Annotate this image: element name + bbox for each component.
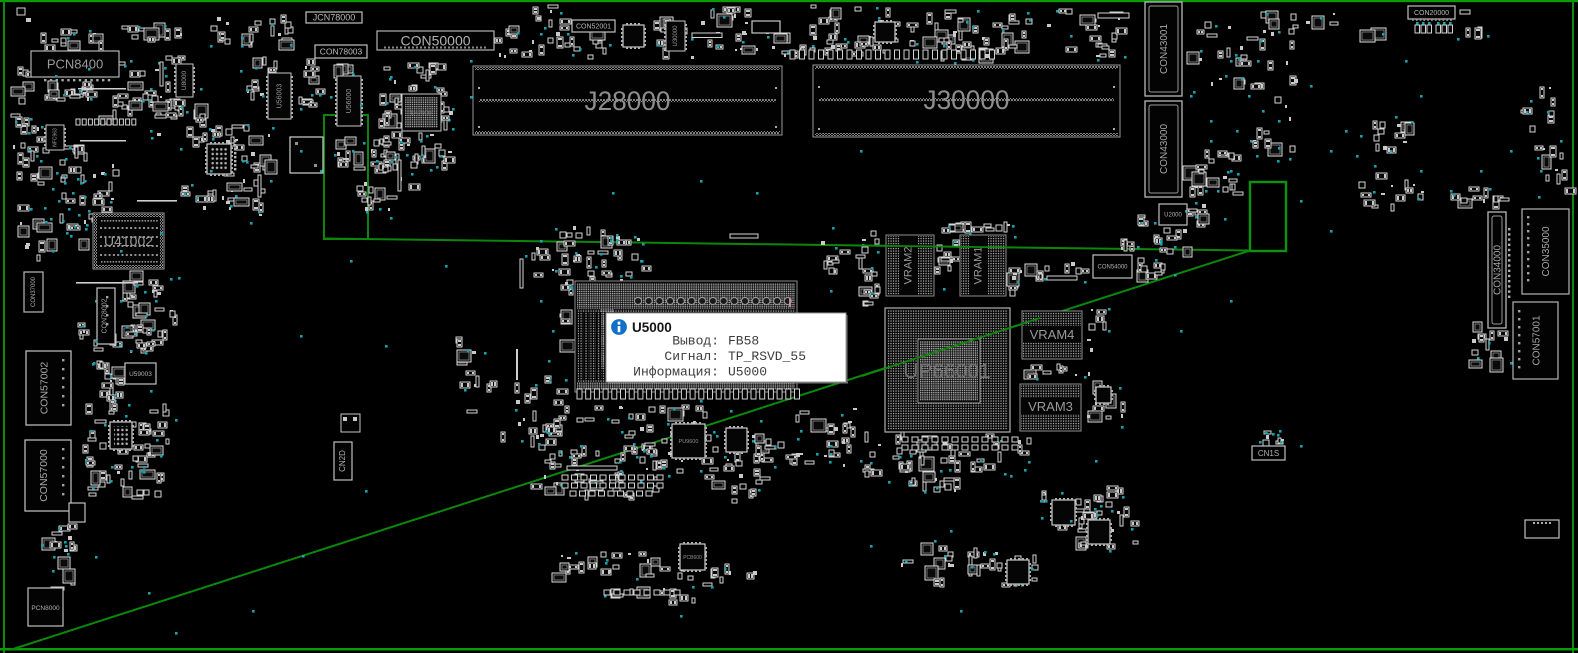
svg-text:TP_RSVD_55: TP_RSVD_55 <box>728 349 806 364</box>
svg-text:CON54000: CON54000 <box>1097 265 1128 271</box>
svg-text:PCN8000: PCN8000 <box>31 605 60 612</box>
svg-text:U8000: U8000 <box>181 71 188 91</box>
svg-text:U5000: U5000 <box>632 320 672 335</box>
svg-text:PU9600: PU9600 <box>679 439 699 445</box>
svg-text:Сигнал:: Сигнал: <box>664 349 719 364</box>
svg-text:CN2D: CN2D <box>338 450 347 472</box>
svg-text:J28000: J28000 <box>585 86 671 116</box>
svg-text:CON37000: CON37000 <box>31 276 37 307</box>
svg-text:CON35000: CON35000 <box>1541 226 1552 276</box>
svg-text:U5000: U5000 <box>728 365 767 380</box>
svg-text:CON78003: CON78003 <box>320 47 363 57</box>
svg-text:CON43001: CON43001 <box>1159 24 1170 74</box>
svg-text:CON20000: CON20000 <box>1414 10 1449 17</box>
svg-text:U30000: U30000 <box>673 25 679 47</box>
svg-text:VRAM2: VRAM2 <box>902 247 914 285</box>
svg-text:FB58: FB58 <box>728 334 759 349</box>
svg-text:PCB600: PCB600 <box>683 555 702 561</box>
svg-text:CON52001: CON52001 <box>576 24 611 31</box>
svg-text:U41002: U41002 <box>104 233 153 249</box>
svg-text:VRAM1: VRAM1 <box>972 247 984 285</box>
svg-text:U2000: U2000 <box>1164 213 1182 219</box>
svg-text:CN1S: CN1S <box>1258 449 1279 458</box>
svg-text:U59003: U59003 <box>129 371 152 378</box>
svg-text:CON57002: CON57002 <box>39 362 51 415</box>
svg-text:CON57000: CON57000 <box>38 449 50 502</box>
svg-text:CON43000: CON43000 <box>1159 124 1170 174</box>
svg-text:Вывод:: Вывод: <box>672 334 719 349</box>
svg-text:J30000: J30000 <box>924 85 1010 115</box>
svg-text:CON50000: CON50000 <box>400 33 470 49</box>
svg-text:U56003: U56003 <box>276 84 283 109</box>
svg-text:UP66001: UP66001 <box>903 360 991 383</box>
svg-text:PCN8400: PCN8400 <box>47 57 103 72</box>
svg-text:VRAM4: VRAM4 <box>1030 327 1075 342</box>
svg-text:VRAM3: VRAM3 <box>1028 399 1073 414</box>
svg-text:Информация:: Информация: <box>633 365 719 380</box>
svg-text:CON57001: CON57001 <box>1532 315 1543 365</box>
svg-text:U56000: U56000 <box>346 89 353 114</box>
svg-text:U47000: U47000 <box>410 111 432 117</box>
svg-text:JCN78000: JCN78000 <box>313 13 356 23</box>
svg-text:NFC963: NFC963 <box>52 128 58 147</box>
svg-text:CON34000: CON34000 <box>1493 245 1504 295</box>
